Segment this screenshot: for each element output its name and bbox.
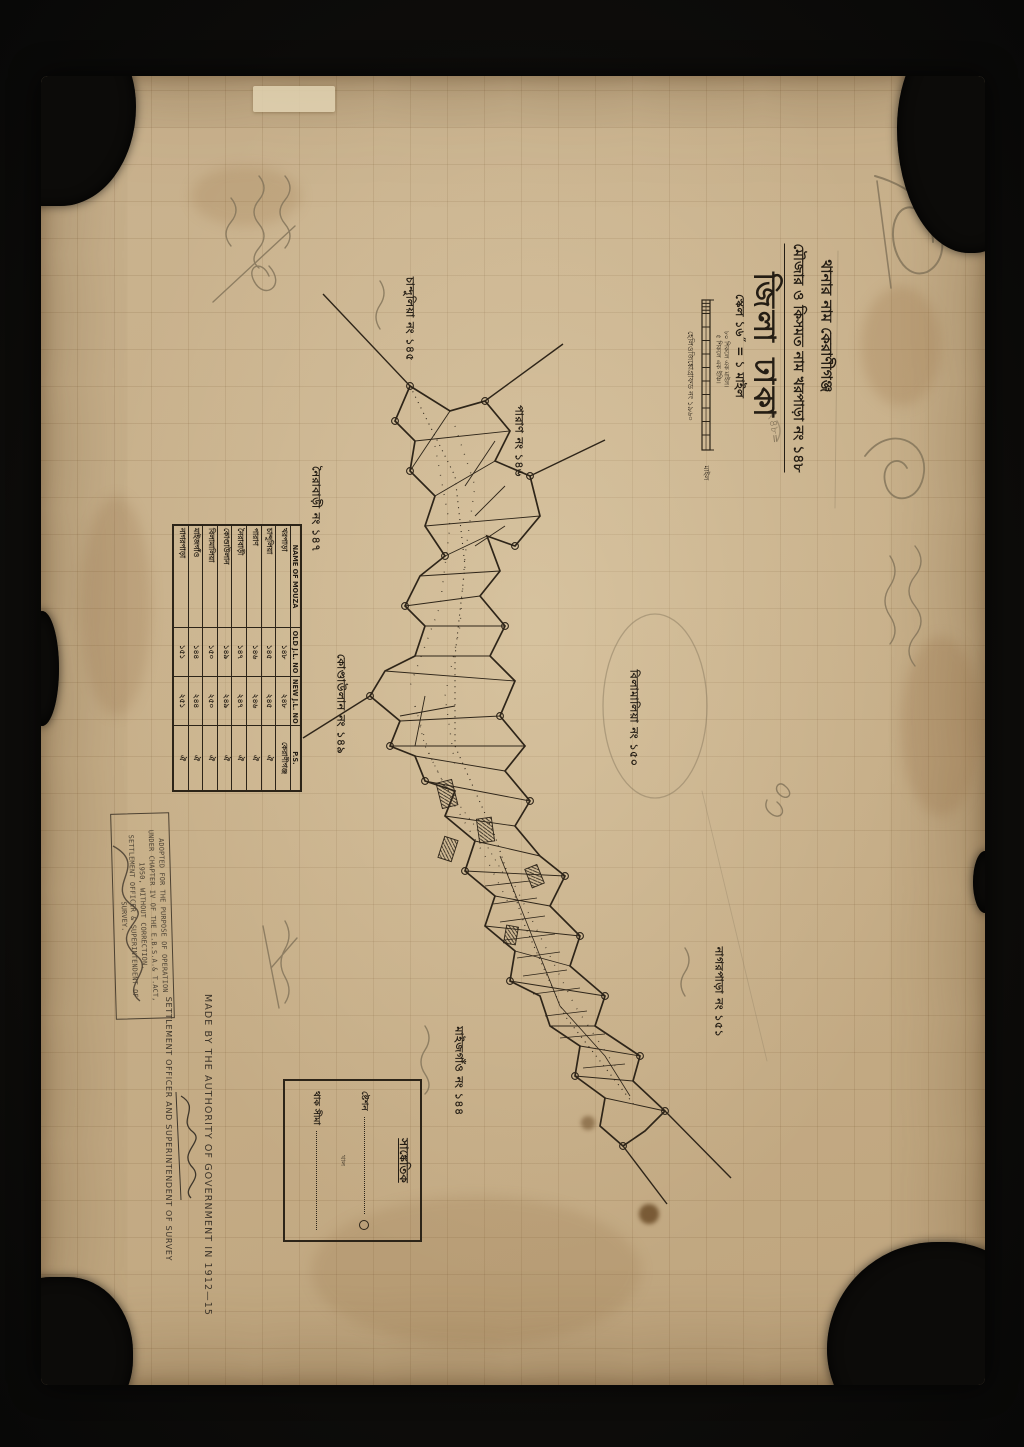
ps: ঐ [173, 726, 188, 792]
mouza-name: খরপাড়া [276, 525, 291, 628]
table-row: নাগরপাড়া১৫১২৫১ঐ [173, 525, 188, 791]
ps: ঐ [217, 726, 232, 792]
new-jl: ২৪৫ [261, 677, 276, 726]
mouza-name: পারাণ [247, 525, 262, 628]
new-jl: ২৪৪ [188, 677, 203, 726]
old-jl: ১৪৫ [261, 628, 276, 677]
mouza-name: চান্দুলিয়া [261, 525, 276, 628]
legend-label: ষ্টেশন [357, 1091, 372, 1111]
new-jl: ২৫০ [203, 677, 218, 726]
mouza-name: মাইজগাঁও [188, 525, 203, 628]
new-jl: ২৪৮ [276, 677, 291, 726]
new-jl: ২৫১ [173, 677, 188, 726]
table-row: বিলামালিয়া১৫০২৫০ঐ [203, 525, 218, 791]
table-row: পারাণ১৪৬২৪৬ঐ [247, 525, 262, 791]
legend-dotted-line [316, 1131, 317, 1230]
map-sheet: থানার নাম কেরাণীগঞ্জ মৌজার ও কিসমত নাম খ… [41, 76, 985, 1385]
map-content-rotated: থানার নাম কেরাণীগঞ্জ মৌজার ও কিসমত নাম খ… [41, 76, 985, 1385]
legend-entry-station: ষ্টেশন [357, 1091, 372, 1230]
ps: ঐ [247, 726, 262, 792]
ps: ঐ [188, 726, 203, 792]
officer-signature [173, 1088, 203, 1203]
mouza-name: কোণ্ডাউলান [217, 525, 232, 628]
old-jl: ১৪৮ [276, 628, 291, 677]
col-header-ps: P.S. [290, 726, 301, 792]
ps: ঐ [203, 726, 218, 792]
new-jl: ২৪৭ [232, 677, 247, 726]
legend-box: সাঙ্কেতিক ষ্টেশন খাল থাক সীমা [283, 1079, 422, 1242]
legend-entry-boundary: থাক সীমা [309, 1091, 324, 1230]
col-header-new: NEW J.L. NO [290, 677, 301, 726]
table-row: কোণ্ডাউলান১৪৯২৪৯ঐ [217, 525, 232, 791]
table-row: মাইজগাঁও১৪৪২৪৪ঐ [188, 525, 203, 791]
old-jl: ১৪৪ [188, 628, 203, 677]
table-row: নৈরাবাড়ী১৪৭২৪৭ঐ [232, 525, 247, 791]
mouza-table: NAME OF MOUZA OLD J.L. NO NEW J.L. NO P.… [172, 524, 302, 792]
legend-label: থাক সীমা [309, 1091, 324, 1125]
ps: ঐ [232, 726, 247, 792]
table-row: খরপাড়া১৪৮২৪৮কেরাণীগঞ্জ [276, 525, 291, 791]
old-jl: ১৫০ [203, 628, 218, 677]
stamp-signature [100, 831, 155, 1011]
table-row: চান্দুলিয়া১৪৫২৪৫ঐ [261, 525, 276, 791]
new-jl: ২৪৯ [217, 677, 232, 726]
mouza-name: নাগরপাড়া [173, 525, 188, 628]
col-header-old: OLD J.L. NO [290, 628, 301, 677]
legend-title: সাঙ্কেতিক [392, 1081, 412, 1240]
col-header-name: NAME OF MOUZA [290, 525, 301, 628]
station-circle-icon [360, 1220, 370, 1230]
old-jl: ১৪৯ [217, 628, 232, 677]
officer-line: SETTLEMENT OFFICER AND SUPERINTENDENT OF… [164, 994, 173, 1264]
ps: ঐ [261, 726, 276, 792]
authority-line: MADE BY THE AUTHORITY OF GOVERNMENT IN 1… [202, 994, 213, 1264]
old-jl: ১৪৬ [247, 628, 262, 677]
mouza-name: নৈরাবাড়ী [232, 525, 247, 628]
old-jl: ১৫১ [173, 628, 188, 677]
legend-dotted-line [364, 1117, 365, 1214]
old-jl: ১৪৭ [232, 628, 247, 677]
ps: কেরাণীগঞ্জ [276, 726, 291, 792]
mouza-name: বিলামালিয়া [203, 525, 218, 628]
legend-note: খাল [337, 1081, 348, 1240]
new-jl: ২৪৬ [247, 677, 262, 726]
